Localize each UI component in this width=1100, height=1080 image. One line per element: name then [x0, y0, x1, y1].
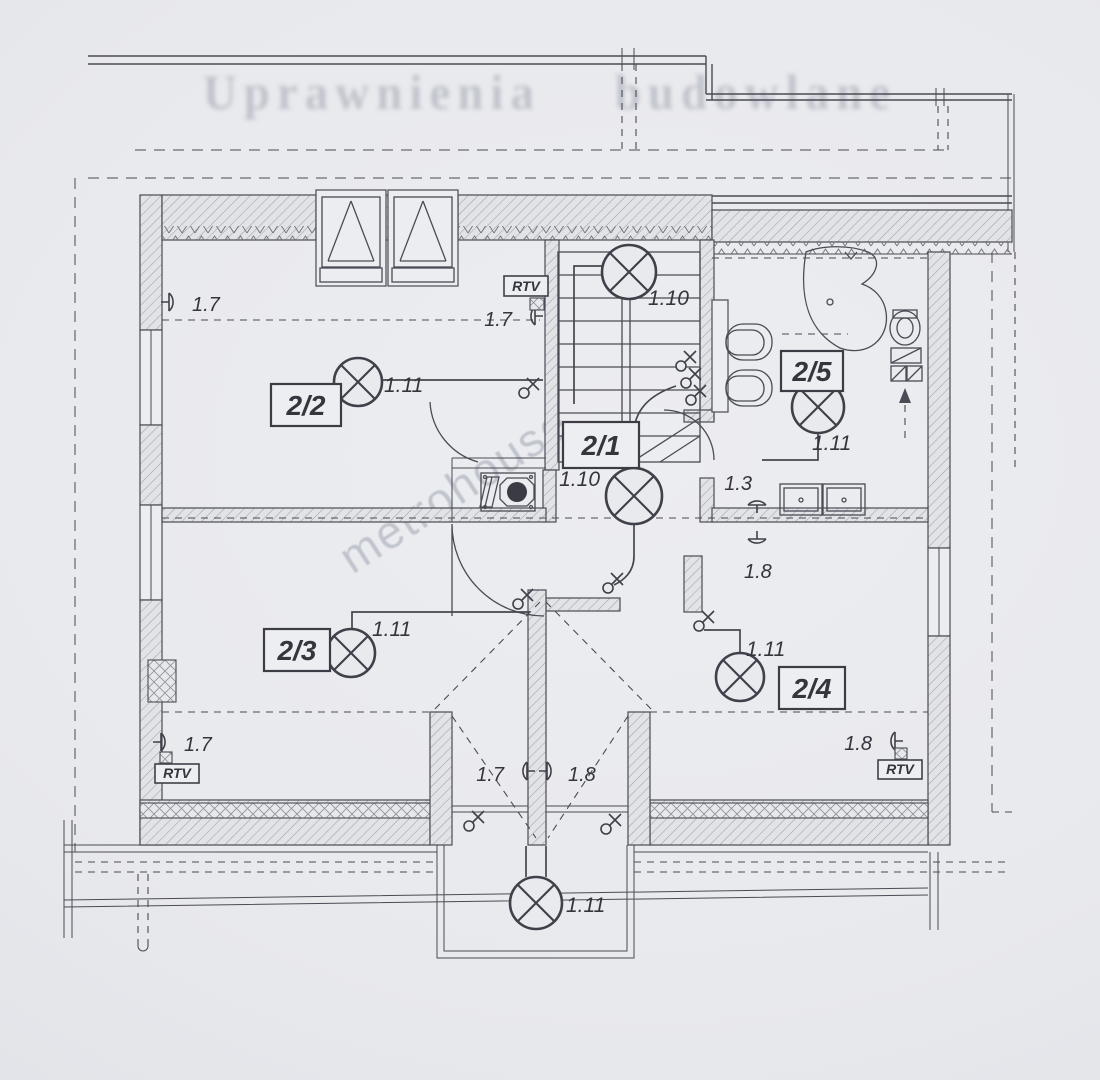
wiring-line [704, 630, 740, 653]
skylight-left [316, 190, 386, 286]
switch-symbol [603, 573, 623, 593]
ceiling-lamp-symbol [327, 629, 375, 677]
rtv-label: RTV [512, 278, 541, 294]
dormer-wall [628, 712, 650, 845]
lamp-label: 1.11 [812, 432, 851, 455]
socket-label: 1.3 [724, 473, 752, 495]
rtv-box: RTV [504, 276, 548, 310]
wall-right [928, 252, 950, 548]
lamp-label: 1.11 [372, 618, 411, 641]
rtv-box: RTV [878, 748, 922, 779]
socket-label: 1.7 [476, 764, 505, 786]
room-label-box: 2/3 [264, 629, 330, 671]
chimney-mark [622, 48, 634, 70]
balcony-door [546, 806, 628, 812]
wall-left [140, 425, 162, 505]
balcony-door [452, 806, 528, 812]
door-arc [430, 402, 478, 462]
switch-symbol [601, 814, 621, 834]
interior-walls [162, 240, 928, 845]
rtv-label: RTV [163, 765, 192, 781]
socket-label: 1.8 [744, 561, 772, 583]
socket-label: 1.7 [192, 294, 221, 316]
wall-left [140, 195, 162, 330]
lamp-label: 1.10 [648, 287, 689, 310]
switch-symbol [464, 811, 484, 831]
floor-plan: 1.10 1.11 1.10 1.11 1.11 1.11 1.11 1.7 [0, 0, 1100, 1080]
wiring-line [574, 266, 603, 404]
room-label: 2/1 [581, 430, 621, 461]
room-label-box: 2/4 [779, 667, 845, 709]
socket-label: 1.8 [844, 733, 872, 755]
wiring-line [526, 846, 546, 877]
lamp-label: 1.10 [559, 468, 600, 491]
skylight-right [388, 190, 458, 286]
scanned-paper: Uprawnienia budowlane metrohouse [0, 0, 1100, 1080]
ceiling-lamp-symbol [606, 468, 662, 524]
bathtub [804, 247, 887, 351]
rtv-box: RTV [155, 752, 199, 783]
socket-label: 1.7 [484, 309, 513, 331]
ceiling-lamp-symbol [510, 877, 562, 929]
stair-wall [545, 240, 559, 470]
lamp-label: 1.11 [746, 638, 785, 661]
vent-arrow [899, 388, 911, 438]
socket-symbol [748, 531, 766, 543]
wc-toilet [480, 473, 535, 511]
room-label: 2/4 [792, 673, 832, 704]
room-label-box: 2/2 [271, 384, 341, 426]
center-wall [528, 590, 546, 845]
toilet [890, 310, 922, 381]
switch-symbol [676, 351, 696, 371]
dormer-wall [430, 712, 452, 845]
switch-symbol [681, 368, 701, 388]
room-label-box: 2/5 [781, 351, 843, 391]
lamp-label: 1.11 [566, 894, 605, 917]
socket-label: 1.8 [568, 764, 596, 786]
lamp-label: 1.11 [384, 374, 423, 397]
wall-right [928, 636, 950, 845]
wiring-line [762, 433, 818, 460]
socket-label: 1.7 [184, 734, 213, 756]
switch-symbol [519, 378, 539, 398]
chimney-box [148, 660, 176, 702]
room-label-box: 2/1 [563, 422, 639, 468]
room-label: 2/2 [286, 390, 326, 421]
socket-symbol [891, 732, 903, 750]
chimney-mark [936, 88, 944, 106]
wiring-line [614, 524, 634, 585]
socket-symbol [161, 293, 173, 311]
wall-2-2-2-3 [162, 508, 546, 522]
wall-top-right [712, 210, 1012, 242]
room-label: 2/3 [277, 635, 317, 666]
twin-sinks [780, 484, 865, 515]
switch-symbol [694, 611, 714, 631]
wash-basins-pair [712, 300, 772, 412]
room-label: 2/5 [792, 356, 832, 387]
rtv-label: RTV [886, 761, 915, 777]
